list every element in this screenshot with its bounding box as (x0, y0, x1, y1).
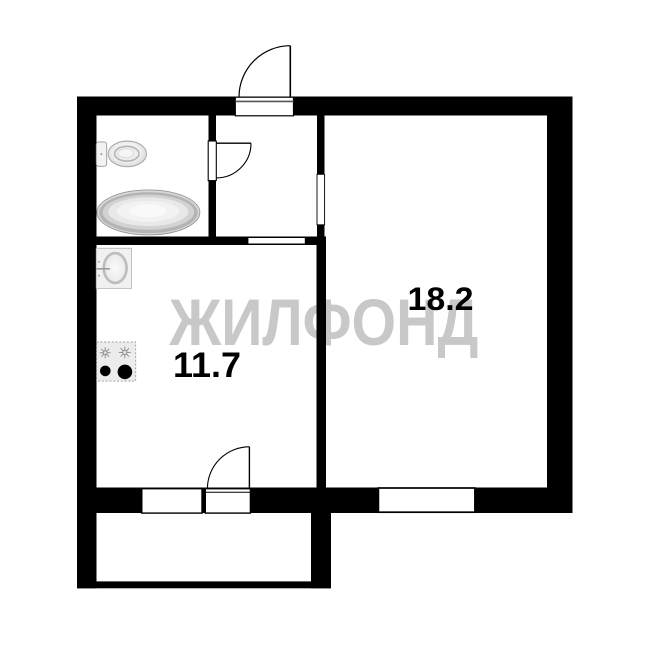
svg-text:18.2: 18.2 (408, 281, 474, 317)
svg-text:11.7: 11.7 (173, 346, 241, 385)
